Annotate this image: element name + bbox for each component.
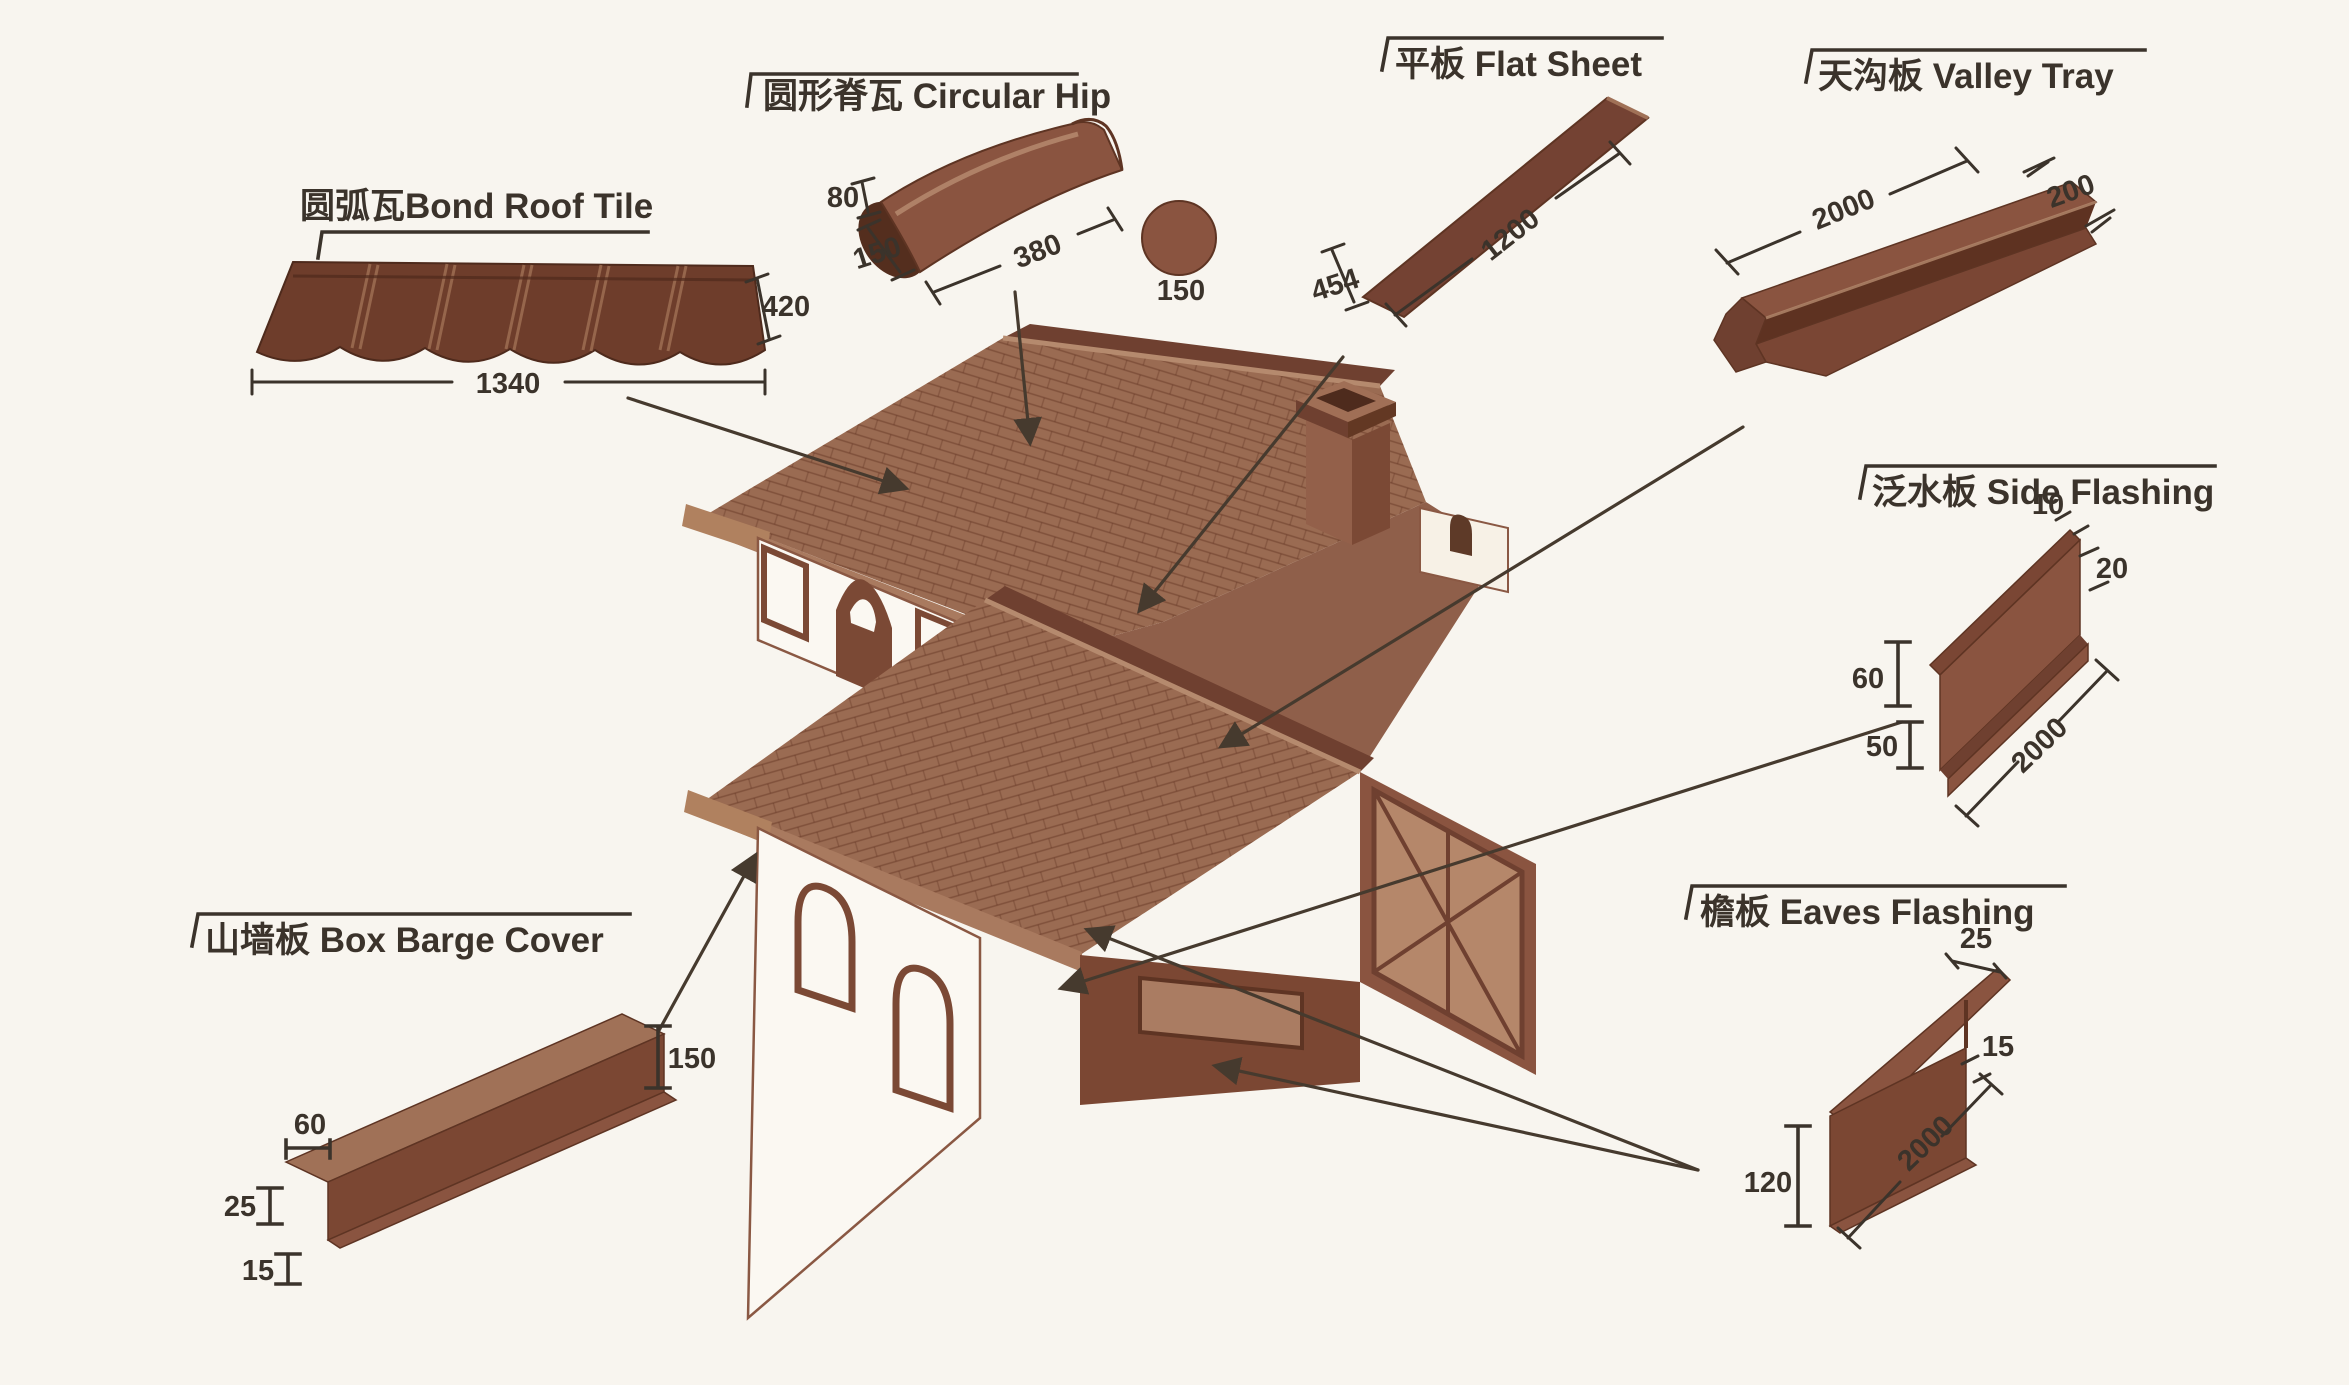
bond-dim-length: 1340	[252, 368, 765, 400]
barge-dim-front-text: 25	[224, 1191, 256, 1223]
barge-dim-lip: 15	[242, 1254, 300, 1287]
roof-accessories-diagram: 圆弧瓦Bond Roof Tile 1340 420 圆形脊瓦 Circular…	[0, 0, 2349, 1385]
part-bond-roof-tile: 圆弧瓦Bond Roof Tile 1340 420	[252, 187, 810, 400]
bond-label-bracket	[318, 232, 648, 258]
eaves-dim-height-text: 120	[1744, 1167, 1792, 1199]
side-dim-upper-text: 60	[1852, 663, 1884, 695]
bond-label: 圆弧瓦Bond Roof Tile	[300, 187, 653, 226]
flat-sheet-drawing	[1363, 98, 1648, 317]
side-dim-upper: 60	[1852, 642, 1910, 706]
side-dim-step-text: 20	[2096, 553, 2128, 585]
part-side-flashing: 泛水板 Side Flashing 10 20 60 50 2000	[1852, 466, 2215, 826]
part-eaves-flashing: 檐板 Eaves Flashing 25 15 120 2000	[1686, 886, 2065, 1248]
eaves-dim-top-text: 25	[1960, 923, 1992, 955]
eaves-dim-step-text: 15	[1982, 1031, 2014, 1063]
hip-dim-length-text: 380	[1009, 228, 1066, 275]
part-valley-tray: 天沟板 Valley Tray 2000 200	[1714, 50, 2145, 376]
part-circular-hip: 圆形脊瓦 Circular Hip 80 150 380 150	[747, 74, 1216, 307]
eaves-drawing	[1830, 968, 2010, 1233]
part-flat-sheet: 平板 Flat Sheet 454 1200	[1307, 38, 1662, 326]
valley-tray-drawing	[1714, 182, 2096, 376]
garage-arch-window-left	[798, 886, 852, 1008]
eaves-dim-height: 120	[1744, 1126, 1810, 1226]
leader-eaves-lower	[1216, 1066, 1698, 1170]
barge-dim-height: 150	[646, 1026, 716, 1088]
diagram-canvas: 圆弧瓦Bond Roof Tile 1340 420 圆形脊瓦 Circular…	[0, 0, 2349, 1385]
eaves-dim-step: 15	[1962, 1031, 2014, 1082]
barge-dim-lip-text: 15	[242, 1255, 274, 1287]
barge-dim-front: 25	[224, 1188, 282, 1224]
chimney-front	[1306, 420, 1352, 545]
chimney	[1296, 381, 1396, 545]
upper-window-left	[764, 548, 806, 638]
side-dim-lower: 50	[1866, 722, 1922, 768]
chimney-side	[1352, 423, 1390, 545]
barge-drawing	[286, 1014, 676, 1248]
garage-arch-window-right	[896, 968, 950, 1108]
right-gable-vent	[1450, 515, 1472, 556]
flat-label: 平板 Flat Sheet	[1395, 45, 1642, 84]
house-illustration	[682, 324, 1536, 1318]
part-box-barge-cover: 山墙板 Box Barge Cover 60 25 15 150	[192, 914, 716, 1287]
side-dim-top-text: 10	[2032, 489, 2064, 521]
bond-dim-length-text: 1340	[476, 368, 541, 400]
valley-dim-length-text: 2000	[1808, 183, 1880, 237]
hip-tile-drawing	[881, 122, 1122, 272]
flat-dim-width: 454	[1307, 244, 1368, 310]
hip-dim-rise-text: 80	[827, 182, 859, 214]
bond-dim-height-text: 420	[762, 291, 810, 323]
valley-label: 天沟板 Valley Tray	[1818, 57, 2114, 96]
barge-label: 山墙板 Box Barge Cover	[205, 921, 604, 960]
hip-section-circle	[1142, 201, 1216, 275]
hip-label: 圆形脊瓦 Circular Hip	[763, 77, 1111, 116]
hip-dim-diameter-text: 150	[1157, 275, 1205, 307]
barge-dim-height-text: 150	[668, 1043, 716, 1075]
side-dim-lower-text: 50	[1866, 731, 1898, 763]
barge-dim-top-text: 60	[294, 1109, 326, 1141]
side-dim-step: 20	[2080, 548, 2128, 590]
